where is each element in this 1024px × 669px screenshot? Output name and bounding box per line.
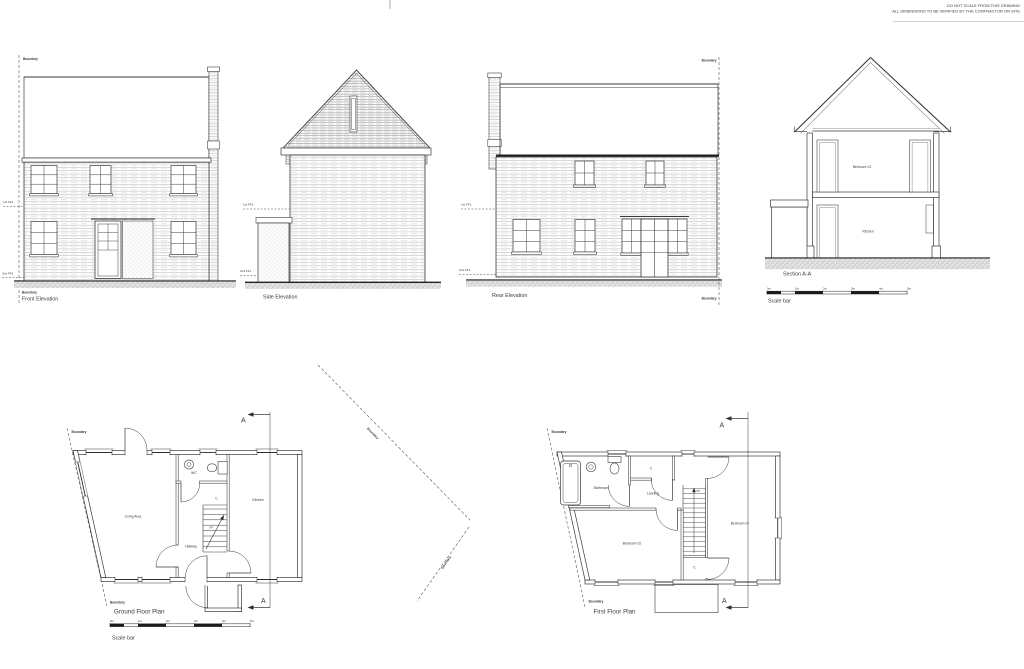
door-frame xyxy=(910,140,931,192)
section-marker: A xyxy=(722,598,727,605)
first-floor-plan: Boundary xyxy=(547,412,782,616)
porch xyxy=(186,585,242,612)
roof xyxy=(500,84,718,155)
scale-tick-label: 3m xyxy=(851,287,856,291)
first-floor-level-label: 1st FFL xyxy=(461,203,472,207)
boundary-label: Boundary xyxy=(589,600,604,604)
window xyxy=(89,166,113,196)
scale-tick-label: 2m xyxy=(823,287,828,291)
door-frame xyxy=(817,140,838,192)
leanto-section xyxy=(771,200,809,258)
room-label-bathroom: Bathroom xyxy=(594,486,609,490)
porch-leanto xyxy=(256,218,292,283)
front-elevation-title: Front Elevation xyxy=(22,297,58,303)
rendered-panel xyxy=(123,221,154,279)
partition-wall xyxy=(176,567,178,578)
room-label-bedroom-01: Bedroom 01 xyxy=(731,522,750,526)
stairs-up-label: UP xyxy=(696,489,700,493)
front-elevation: Boundary 1st FFL xyxy=(2,55,236,303)
room-label-wc: WC xyxy=(191,471,197,475)
gable-vent-window xyxy=(350,96,357,132)
wc-toilet xyxy=(207,462,227,475)
boundary-label: Boundary xyxy=(23,57,38,61)
bathtub xyxy=(561,461,581,505)
door xyxy=(708,457,729,478)
room-label-kitchen: Kitchen xyxy=(862,230,873,234)
boundary-label: Boundary xyxy=(22,291,37,295)
eaves-band xyxy=(281,148,431,155)
window xyxy=(775,517,782,540)
note-line-2: ALL DIMENSIONS TO BE VERIFIED BY THE CON… xyxy=(892,9,1020,14)
drawing-canvas: DO NOT SCALE FROM THIS DRAWING ALL DIMEN… xyxy=(0,0,1024,669)
architectural-drawing-sheet: DO NOT SCALE FROM THIS DRAWING ALL DIMEN… xyxy=(0,0,1024,669)
room-label-hallway: Hallway xyxy=(185,545,197,549)
window xyxy=(141,577,172,583)
window xyxy=(645,161,666,187)
window xyxy=(734,579,759,585)
room-label-cupboard: C xyxy=(215,497,218,501)
eaves-gutter xyxy=(22,158,211,162)
scale-tick-label: 0m xyxy=(767,287,772,291)
partition-wall xyxy=(200,481,228,483)
window xyxy=(512,220,542,255)
scale-tick-label: 0m xyxy=(110,619,115,623)
scale-tick-label: 1m xyxy=(138,619,143,623)
wc-sink xyxy=(184,460,193,469)
ground-hatch xyxy=(245,283,441,289)
scale-tick-label: 3m xyxy=(194,619,199,623)
side-elevation: 1st FFL Grd FFL Side Elevation xyxy=(240,70,441,301)
partition-wall xyxy=(673,456,675,480)
door xyxy=(651,479,672,500)
boundary-label: Boundary xyxy=(440,555,452,570)
ground-floor-level-label: Grd FFL xyxy=(459,268,471,272)
first-floor-level-label: 1st FFL xyxy=(3,200,14,204)
bathroom-toilet xyxy=(608,457,621,475)
staircase: UP xyxy=(203,505,227,552)
first-floor-level-label: 1st FFL xyxy=(243,203,254,207)
partition-wall xyxy=(706,579,708,580)
section-marker: A xyxy=(720,423,725,430)
partition-wall xyxy=(176,455,178,546)
external-wall xyxy=(557,452,780,456)
partition-wall xyxy=(227,573,229,578)
scale-tick-label: 5m xyxy=(250,619,255,623)
site-boundary: Boundary Boundary xyxy=(318,365,470,601)
room-label-living-area: Living Area xyxy=(125,515,142,519)
door xyxy=(708,558,729,579)
floor-joist-band xyxy=(813,192,940,198)
window xyxy=(574,161,596,187)
boundary-label: Boundary xyxy=(110,601,125,605)
section-a-a: Bedroom 01 Kitchen Section A-A 0m 1m 2m … xyxy=(765,58,990,305)
scale-tick-label: 2m xyxy=(166,619,171,623)
window xyxy=(170,166,198,196)
room-label-cupboard: C xyxy=(693,566,696,570)
scale-bar-plan: 0m 1m 2m 3m 4m 5m Scale bar xyxy=(110,619,255,642)
section-marker: A xyxy=(261,598,266,605)
rear-elevation: 1st FFL Grd FFL Boundary Boundary Rear E… xyxy=(459,57,722,305)
boundary-label: Boundary xyxy=(702,59,717,63)
partition-wall xyxy=(629,456,631,485)
boundary-line xyxy=(318,365,470,520)
stairs-up-label: UP xyxy=(209,526,213,530)
entrance-door xyxy=(125,428,147,455)
side-elevation-title: Side Elevation xyxy=(263,295,297,301)
ground-floor-plan: Boundary xyxy=(67,412,302,642)
door xyxy=(229,551,251,573)
window xyxy=(607,451,628,457)
ground-floor-plan-title: Ground Floor Plan xyxy=(114,609,165,616)
section-marker: A xyxy=(241,418,246,425)
window xyxy=(114,577,140,583)
door xyxy=(181,483,200,502)
partition-wall xyxy=(176,481,181,483)
scale-tick-label: 1m xyxy=(795,287,800,291)
window xyxy=(170,222,198,257)
window xyxy=(681,451,696,457)
room-label-kitchen: Kitchen xyxy=(252,498,263,502)
window-section xyxy=(926,205,934,233)
window xyxy=(594,579,620,585)
room-label-bedroom-02: Bedroom 02 xyxy=(623,542,642,546)
door xyxy=(656,509,677,530)
window xyxy=(151,449,172,455)
scale-tick-label: 4m xyxy=(222,619,227,623)
boundary-label: Boundary xyxy=(72,430,87,434)
window xyxy=(256,449,279,455)
window xyxy=(30,222,59,257)
partition-wall xyxy=(706,479,708,558)
door xyxy=(185,556,207,578)
ground-hatch xyxy=(14,282,236,288)
ground-hatch xyxy=(466,281,722,287)
window xyxy=(85,449,114,455)
partition-wall xyxy=(677,508,681,510)
first-floor-plan-title: First Floor Plan xyxy=(594,609,637,616)
note-line-1: DO NOT SCALE FROM THIS DRAWING xyxy=(947,3,1020,8)
ground-floor-level-label: Grd FFL xyxy=(2,272,14,276)
boundary-label: Boundary xyxy=(552,430,567,434)
boundary-label: Boundary xyxy=(702,297,717,301)
door xyxy=(608,485,629,506)
wall xyxy=(290,155,425,282)
window xyxy=(30,166,59,196)
scale-bar-section: 0m 1m 2m 3m 4m 5m Scale bar xyxy=(767,287,912,305)
boundary-label: Boundary xyxy=(366,427,379,441)
ground-floor-level-label: Grd FFL xyxy=(240,269,252,273)
scale-tick-label: 5m xyxy=(907,287,912,291)
bathroom-sink xyxy=(586,462,596,472)
partition-wall xyxy=(683,556,706,558)
rear-door-opening xyxy=(185,577,207,582)
external-wall xyxy=(298,455,303,578)
wall-section xyxy=(807,133,813,258)
partition-wall xyxy=(631,478,652,480)
section-title: Section A-A xyxy=(783,272,812,278)
scale-bar-label: Scale bar xyxy=(768,299,791,305)
door xyxy=(156,545,178,567)
room-label-cupboard: C xyxy=(650,467,653,471)
room-label-landing: Landing xyxy=(647,492,659,496)
ground-hatch xyxy=(765,259,990,270)
window xyxy=(574,220,597,255)
window xyxy=(256,577,279,583)
room-label-bedroom-01: Bedroom 01 xyxy=(853,165,872,169)
partition-wall xyxy=(681,510,683,580)
staircase: UP xyxy=(683,485,706,557)
scale-tick-label: 4m xyxy=(879,287,884,291)
sheet-notes: DO NOT SCALE FROM THIS DRAWING ALL DIMEN… xyxy=(390,0,1024,22)
scale-bar-label: Scale bar xyxy=(112,636,135,642)
window xyxy=(199,449,218,455)
rear-elevation-title: Rear Elevation xyxy=(492,293,527,299)
door-frame xyxy=(817,205,838,258)
roof xyxy=(24,77,209,158)
partition-wall xyxy=(570,508,656,510)
roof-section xyxy=(794,58,952,134)
partition-wall xyxy=(569,506,610,508)
porch-outline xyxy=(655,585,718,613)
